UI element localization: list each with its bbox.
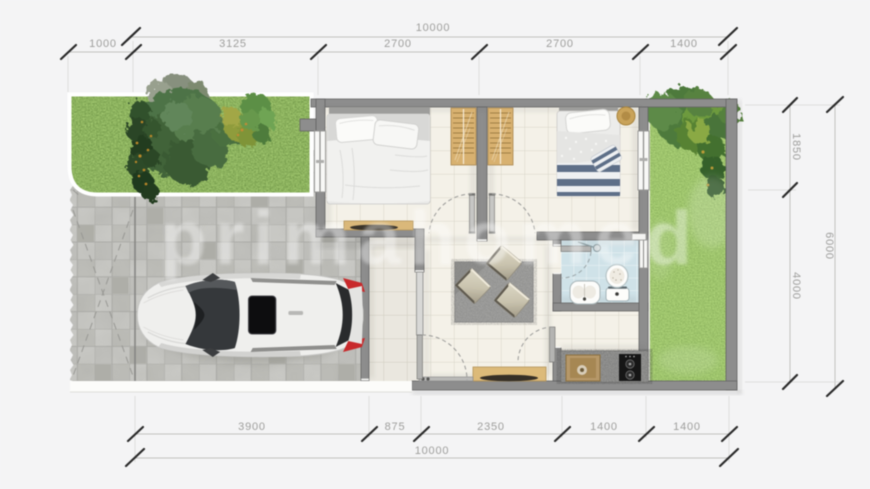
svg-text:1400: 1400 — [590, 421, 618, 433]
svg-text:10000: 10000 — [416, 22, 451, 34]
svg-text:2700: 2700 — [546, 38, 574, 50]
svg-text:1400: 1400 — [670, 38, 698, 50]
svg-text:4000: 4000 — [790, 272, 802, 300]
svg-text:10000: 10000 — [415, 445, 450, 457]
svg-text:875: 875 — [385, 421, 406, 433]
svg-text:3900: 3900 — [238, 421, 266, 433]
svg-text:1850: 1850 — [790, 133, 802, 161]
svg-text:1000: 1000 — [89, 38, 117, 50]
svg-text:primahomed: primahomed — [160, 196, 692, 281]
svg-text:6000: 6000 — [823, 232, 835, 260]
svg-text:3125: 3125 — [219, 38, 247, 50]
svg-text:2700: 2700 — [384, 38, 412, 50]
svg-text:1400: 1400 — [673, 421, 701, 433]
svg-text:2350: 2350 — [477, 421, 505, 433]
